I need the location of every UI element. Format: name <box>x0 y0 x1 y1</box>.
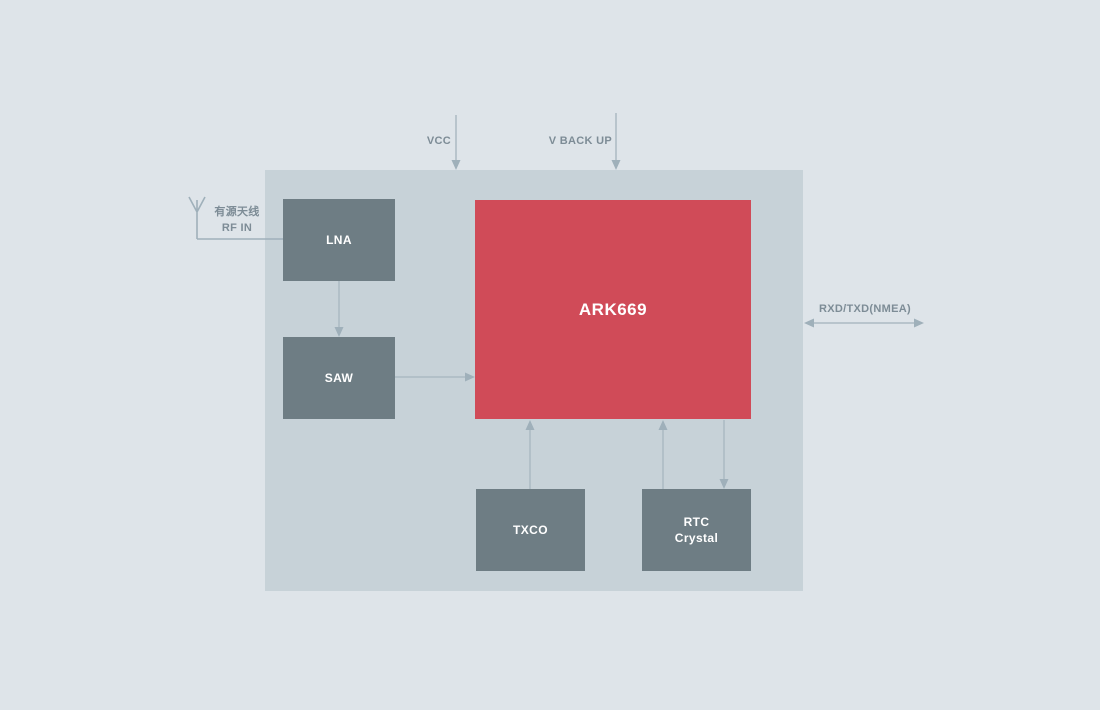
antenna-icon <box>189 197 205 239</box>
txco-label: TXCO <box>513 522 548 538</box>
rxd-txd-label: RXD/TXD(NMEA) <box>805 303 925 315</box>
arrow-v-backup <box>612 113 621 170</box>
ark669-label: ARK669 <box>579 300 647 320</box>
vcc-label: VCC <box>405 135 451 147</box>
block-lna: LNA <box>283 199 395 281</box>
block-rtc-crystal: RTC Crystal <box>642 489 751 571</box>
lna-label: LNA <box>326 232 352 248</box>
block-ark669: ARK669 <box>475 200 751 419</box>
arrow-vcc <box>452 115 461 170</box>
antenna-label: 有源天线 RF IN <box>208 204 266 236</box>
block-saw: SAW <box>283 337 395 419</box>
saw-label: SAW <box>325 370 354 386</box>
arrow-rxd-txd <box>804 319 924 328</box>
block-txco: TXCO <box>476 489 585 571</box>
diagram-canvas: LNA SAW ARK669 TXCO RTC Crystal VCC V BA… <box>0 0 1100 710</box>
antenna-label-line1: 有源天线 <box>208 204 266 220</box>
rtc-label-line2: Crystal <box>675 530 719 546</box>
rtc-label-line1: RTC <box>684 514 710 530</box>
v-backup-label: V BACK UP <box>540 135 612 147</box>
antenna-label-line2: RF IN <box>208 220 266 236</box>
